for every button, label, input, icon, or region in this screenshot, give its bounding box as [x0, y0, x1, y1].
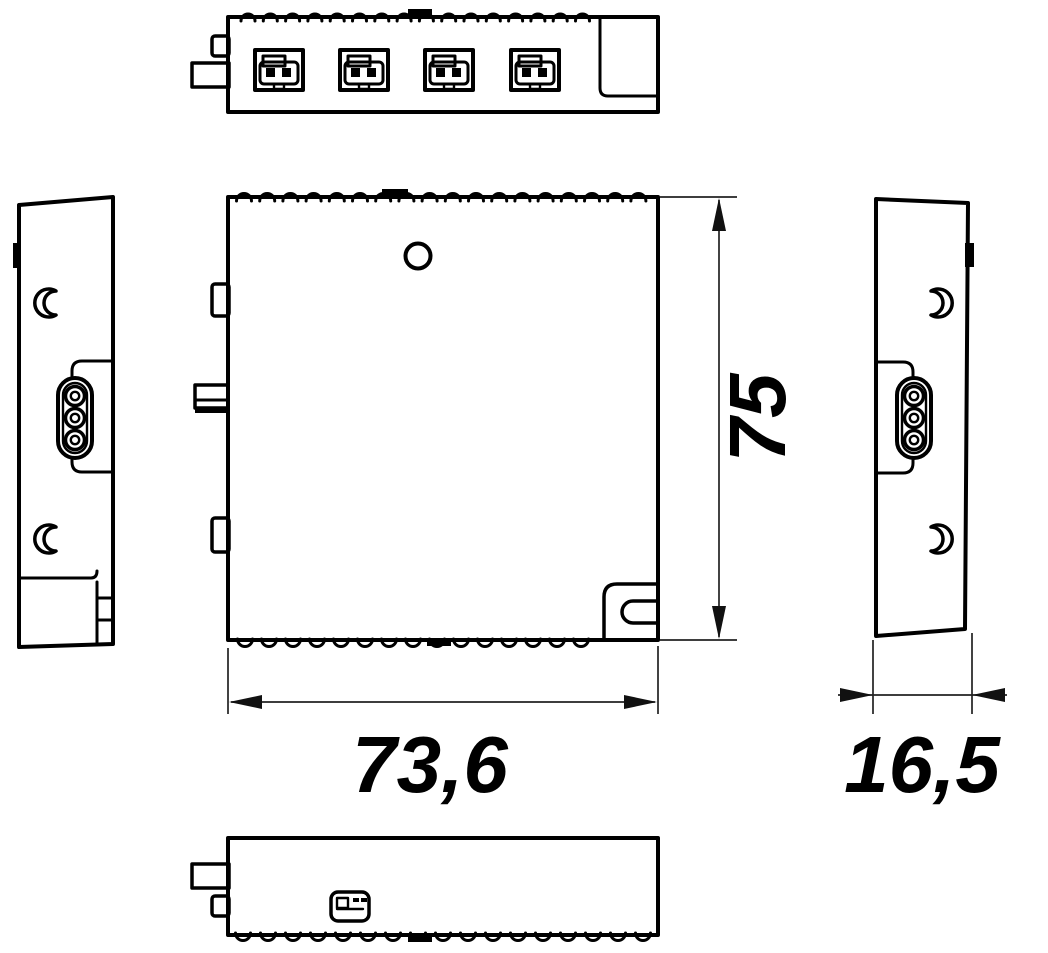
socket-connector-2 — [340, 50, 388, 90]
bottom-view-mini-connector — [331, 892, 369, 921]
multi-view-technical-drawing: 75 73,6 16,5 — [0, 0, 1048, 953]
dimension-height: 75 — [660, 197, 802, 640]
top-view-end-panel — [600, 17, 658, 96]
width-arrow-right-icon — [624, 695, 657, 709]
height-arrow-down-icon — [712, 606, 726, 639]
socket-connector-3 — [425, 50, 473, 90]
bottom-view — [192, 838, 658, 942]
left-side-view — [13, 197, 113, 647]
left-view-bottom-step — [19, 571, 113, 644]
bottom-view-body — [228, 838, 658, 935]
socket-connector-1 — [255, 50, 303, 90]
technical-drawing-page: 75 73,6 16,5 — [0, 0, 1048, 953]
width-arrow-left-icon — [229, 695, 262, 709]
front-view-side-tab-middle — [195, 385, 228, 413]
mounting-hole — [406, 244, 431, 269]
left-view-crescent-lower — [35, 525, 56, 553]
top-view — [192, 9, 658, 112]
front-view-body — [228, 197, 658, 640]
left-view-edge-tab — [13, 243, 20, 268]
top-view-large-side-tab — [192, 63, 229, 87]
dimension-depth: 16,5 — [838, 633, 1007, 809]
front-view — [195, 189, 658, 647]
bottom-view-large-side-tab — [192, 864, 229, 888]
right-view-edge-tab — [965, 243, 974, 267]
right-view-crescent-upper — [931, 289, 952, 317]
width-dimension-label: 73,6 — [352, 720, 508, 809]
depth-arrow-right-icon — [840, 688, 873, 702]
bottom-view-center-tab — [408, 933, 432, 942]
socket-connector-4 — [511, 50, 559, 90]
left-view-crescent-upper — [35, 289, 56, 317]
dimension-width: 73,6 — [228, 646, 658, 809]
left-view-3pole-connector — [58, 378, 92, 458]
right-view-crescent-lower — [931, 525, 952, 553]
right-view-3pole-connector — [897, 378, 931, 458]
depth-arrow-left-icon — [972, 688, 1005, 702]
height-arrow-up-icon — [712, 198, 726, 231]
height-dimension-label: 75 — [713, 372, 802, 462]
right-side-view — [876, 199, 974, 636]
depth-dimension-label: 16,5 — [844, 720, 1001, 809]
keyhole-slot — [604, 584, 658, 640]
